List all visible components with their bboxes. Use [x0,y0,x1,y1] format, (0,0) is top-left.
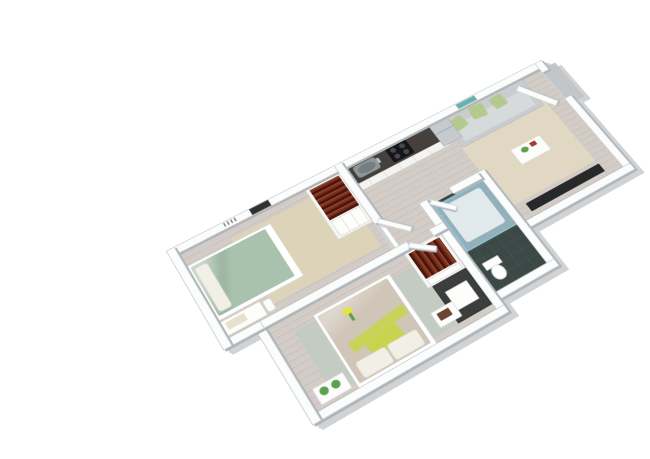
fridge-door-seam [435,125,453,134]
floor-plan-stage [0,0,650,459]
burner [393,153,401,160]
apartment-floor-plan [166,61,650,444]
burner [402,148,410,155]
